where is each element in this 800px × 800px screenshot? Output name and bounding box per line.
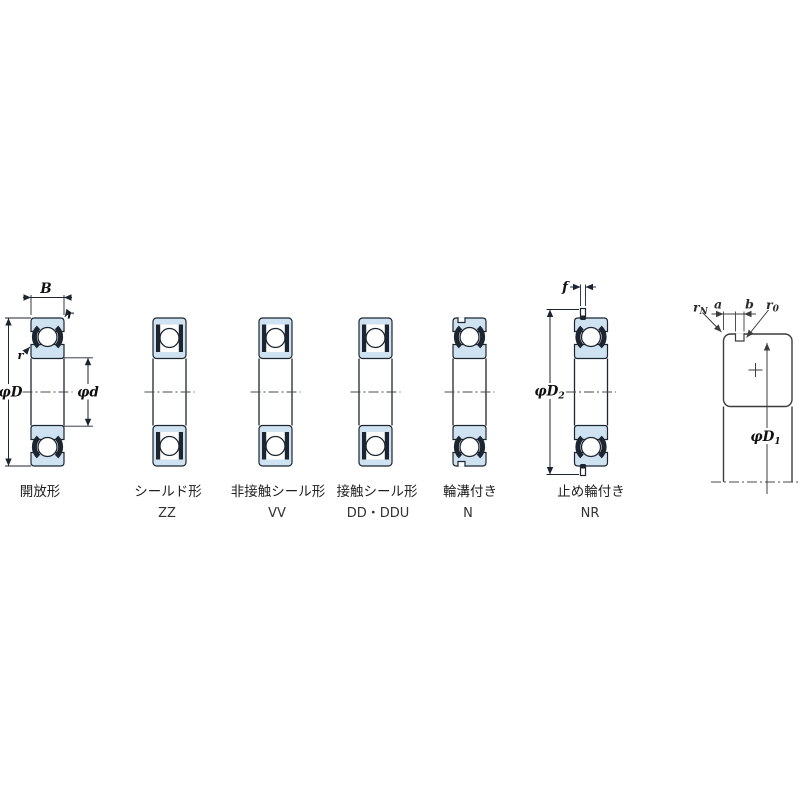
- dimension-r-inner: r: [18, 347, 30, 362]
- bearing-cross-section: [445, 318, 495, 466]
- dim-label-a: a: [714, 297, 722, 312]
- bearing-type-label-groove: 輪溝付き: [443, 483, 497, 500]
- bearing-code-VV: VV: [268, 506, 286, 521]
- bearing-contact-seal-type: [351, 318, 401, 466]
- snap-ring-groove-bottom: [458, 462, 465, 467]
- bearing-code-NR: NR: [581, 506, 600, 521]
- bearing-cross-section: [145, 318, 195, 466]
- dim-label-r-outer: r: [67, 308, 74, 322]
- dimension-phid: φd: [64, 358, 99, 426]
- bearing-code-ZZ: ZZ: [158, 506, 176, 521]
- snap-ring-bottom: [581, 464, 586, 476]
- bearing-code-N: N: [463, 506, 473, 521]
- center-mark: [749, 363, 763, 377]
- bearing-cross-section: [251, 318, 301, 466]
- bearing-groove-type: [445, 317, 495, 466]
- dim-label-B: B: [39, 281, 51, 297]
- dim-label-phiD: φD: [0, 385, 23, 401]
- dim-label-b: b: [745, 297, 754, 312]
- bearing-type-label-noncontact-seal: 非接触シール形: [231, 483, 326, 500]
- groove-notch: [736, 333, 745, 341]
- dimension-phiD1: φD1: [748, 343, 786, 494]
- bearing-shielded-type: [145, 318, 195, 466]
- dimension-a-b: a b: [712, 297, 757, 332]
- dimension-B: B: [23, 281, 72, 315]
- bearing-type-label-open: 開放形: [20, 484, 61, 500]
- dim-label-r0: r0: [766, 297, 780, 315]
- bearing-type-label-shielded: シールド形: [134, 484, 202, 500]
- bearing-cross-section: [566, 318, 616, 466]
- bearing-snap-ring-type: f φD2: [534, 280, 616, 476]
- bearing-types-diagram: B r r φD φd: [0, 0, 800, 800]
- bearing-noncontact-seal-type: [251, 318, 301, 466]
- bearing-type-label-snap-ring: 止め輪付き: [557, 483, 625, 500]
- captions: 開放形 シールド形 非接触シール形 接触シール形 輪溝付き 止め輪付き ZZ V…: [20, 483, 625, 521]
- snap-ring-top: [581, 309, 586, 321]
- bearing-open-type: B r r φD φd: [0, 281, 99, 466]
- page: B r r φD φd: [0, 0, 800, 800]
- groove-detail-view: a b rN r0 φD1: [693, 297, 800, 495]
- bearing-code-DD: DD・DDU: [347, 506, 410, 521]
- snap-ring-groove-top: [458, 317, 465, 322]
- dim-label-phid: φd: [77, 385, 99, 401]
- dimension-r-outer: r: [65, 308, 74, 322]
- dim-label-f: f: [561, 280, 570, 296]
- bearing-cross-section: [351, 318, 401, 466]
- bearing-cross-section: [23, 318, 73, 466]
- dim-label-rN: rN: [693, 300, 709, 318]
- dim-label-r-inner: r: [18, 348, 25, 362]
- dimension-f: f: [561, 280, 596, 307]
- bearing-type-label-contact-seal: 接触シール形: [337, 483, 418, 500]
